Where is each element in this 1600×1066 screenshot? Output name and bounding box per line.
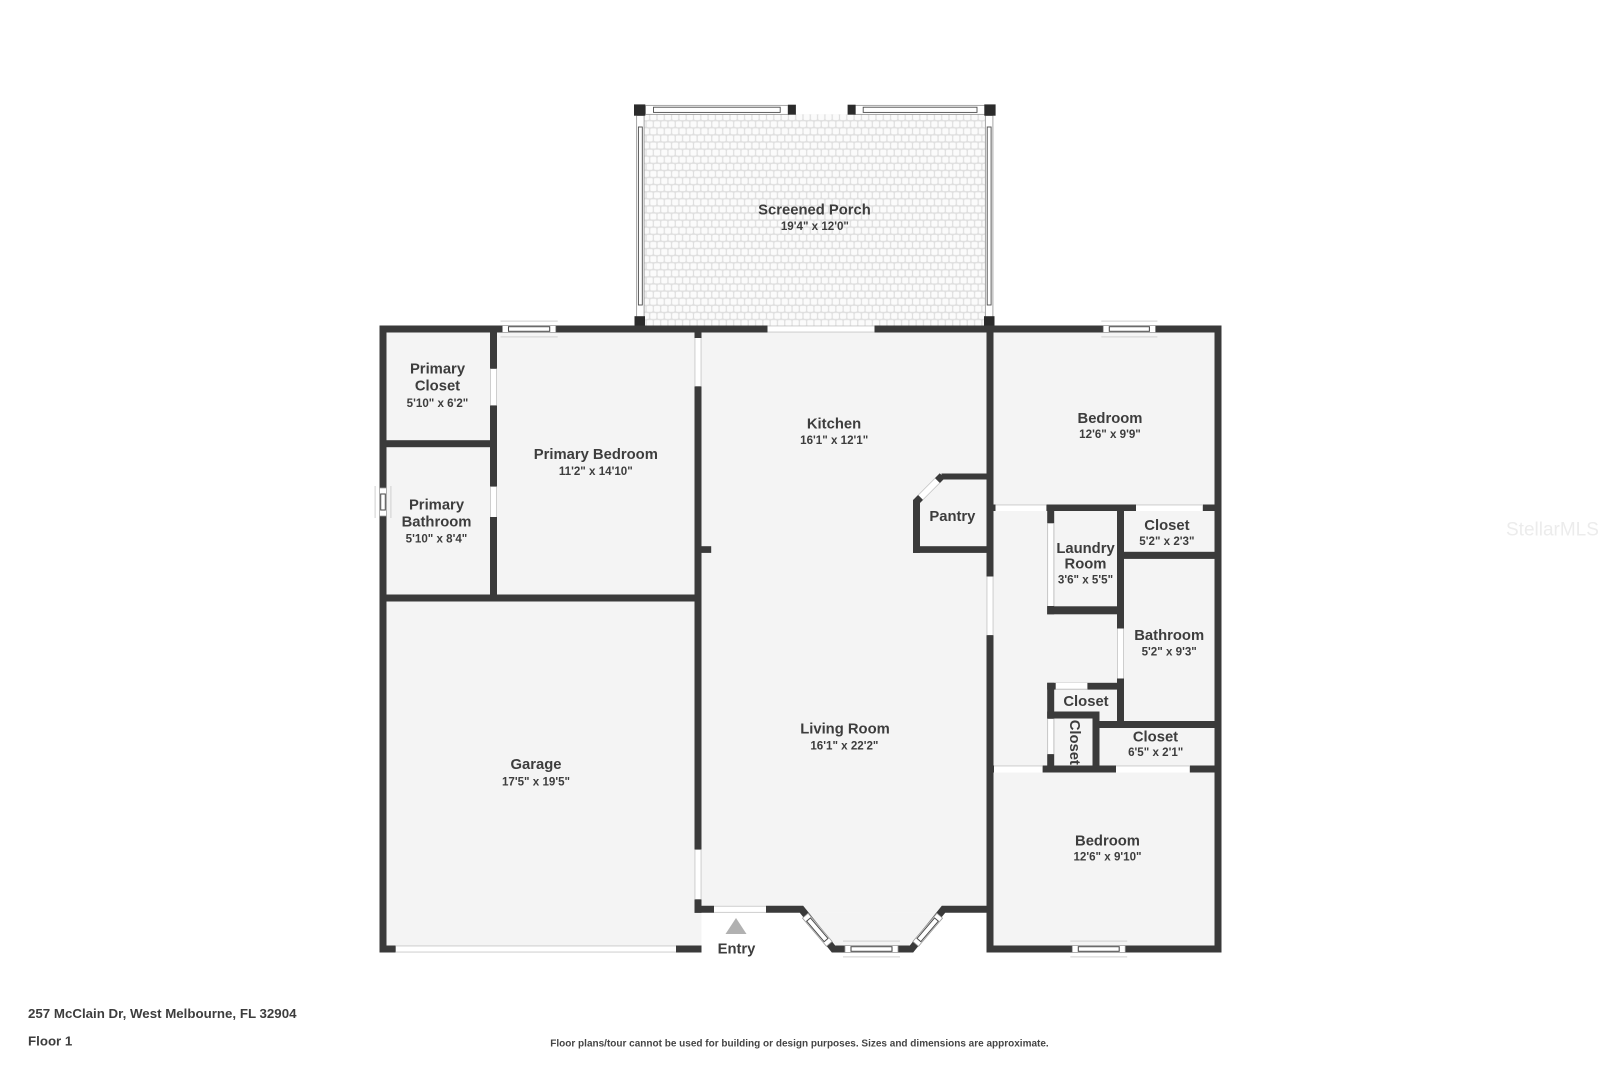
svg-text:Room: Room bbox=[1065, 556, 1107, 572]
svg-text:Bathroom: Bathroom bbox=[1134, 628, 1204, 644]
svg-text:5'2" x 9'3": 5'2" x 9'3" bbox=[1142, 645, 1197, 658]
svg-text:Closet: Closet bbox=[1066, 720, 1082, 765]
svg-text:Primary: Primary bbox=[409, 498, 465, 514]
svg-text:11'2" x 14'10": 11'2" x 14'10" bbox=[559, 465, 633, 478]
svg-text:Closet: Closet bbox=[1144, 518, 1189, 534]
svg-text:5'2" x 2'3": 5'2" x 2'3" bbox=[1139, 535, 1194, 548]
svg-text:Laundry: Laundry bbox=[1056, 541, 1115, 557]
svg-text:3'6" x 5'5": 3'6" x 5'5" bbox=[1058, 574, 1113, 587]
svg-text:Bedroom: Bedroom bbox=[1078, 411, 1143, 427]
svg-text:Bathroom: Bathroom bbox=[402, 514, 472, 530]
svg-text:Closet: Closet bbox=[1133, 730, 1178, 746]
svg-text:Screened Porch: Screened Porch bbox=[758, 202, 871, 218]
svg-text:Primary: Primary bbox=[410, 362, 466, 378]
svg-text:Closet: Closet bbox=[415, 378, 460, 394]
svg-text:Pantry: Pantry bbox=[929, 509, 976, 525]
svg-text:5'10" x 6'2": 5'10" x 6'2" bbox=[407, 397, 469, 410]
svg-text:5'10" x 8'4": 5'10" x 8'4" bbox=[406, 532, 468, 545]
svg-text:257 McClain Dr, West Melbourne: 257 McClain Dr, West Melbourne, FL 32904 bbox=[28, 1006, 297, 1021]
svg-text:16'1" x 12'1": 16'1" x 12'1" bbox=[800, 434, 868, 447]
svg-text:17'5" x 19'5": 17'5" x 19'5" bbox=[502, 776, 570, 789]
svg-text:Bedroom: Bedroom bbox=[1075, 833, 1140, 849]
svg-text:Kitchen: Kitchen bbox=[807, 416, 861, 432]
svg-text:Primary Bedroom: Primary Bedroom bbox=[534, 447, 658, 463]
svg-text:12'6" x 9'9": 12'6" x 9'9" bbox=[1079, 428, 1141, 441]
svg-text:Closet: Closet bbox=[1063, 694, 1108, 710]
svg-text:6'5" x 2'1": 6'5" x 2'1" bbox=[1128, 746, 1183, 759]
svg-text:StellarMLS: StellarMLS bbox=[1506, 519, 1599, 540]
svg-text:Floor 1: Floor 1 bbox=[28, 1034, 73, 1049]
svg-text:Entry: Entry bbox=[718, 941, 757, 957]
svg-text:12'6" x 9'10": 12'6" x 9'10" bbox=[1073, 850, 1141, 863]
svg-text:16'1" x 22'2": 16'1" x 22'2" bbox=[810, 739, 878, 752]
svg-text:Garage: Garage bbox=[511, 757, 562, 773]
svg-text:Floor plans/tour cannot be use: Floor plans/tour cannot be used for buil… bbox=[550, 1039, 1049, 1050]
svg-text:Living Room: Living Room bbox=[800, 722, 890, 738]
svg-text:19'4" x 12'0": 19'4" x 12'0" bbox=[781, 220, 849, 233]
